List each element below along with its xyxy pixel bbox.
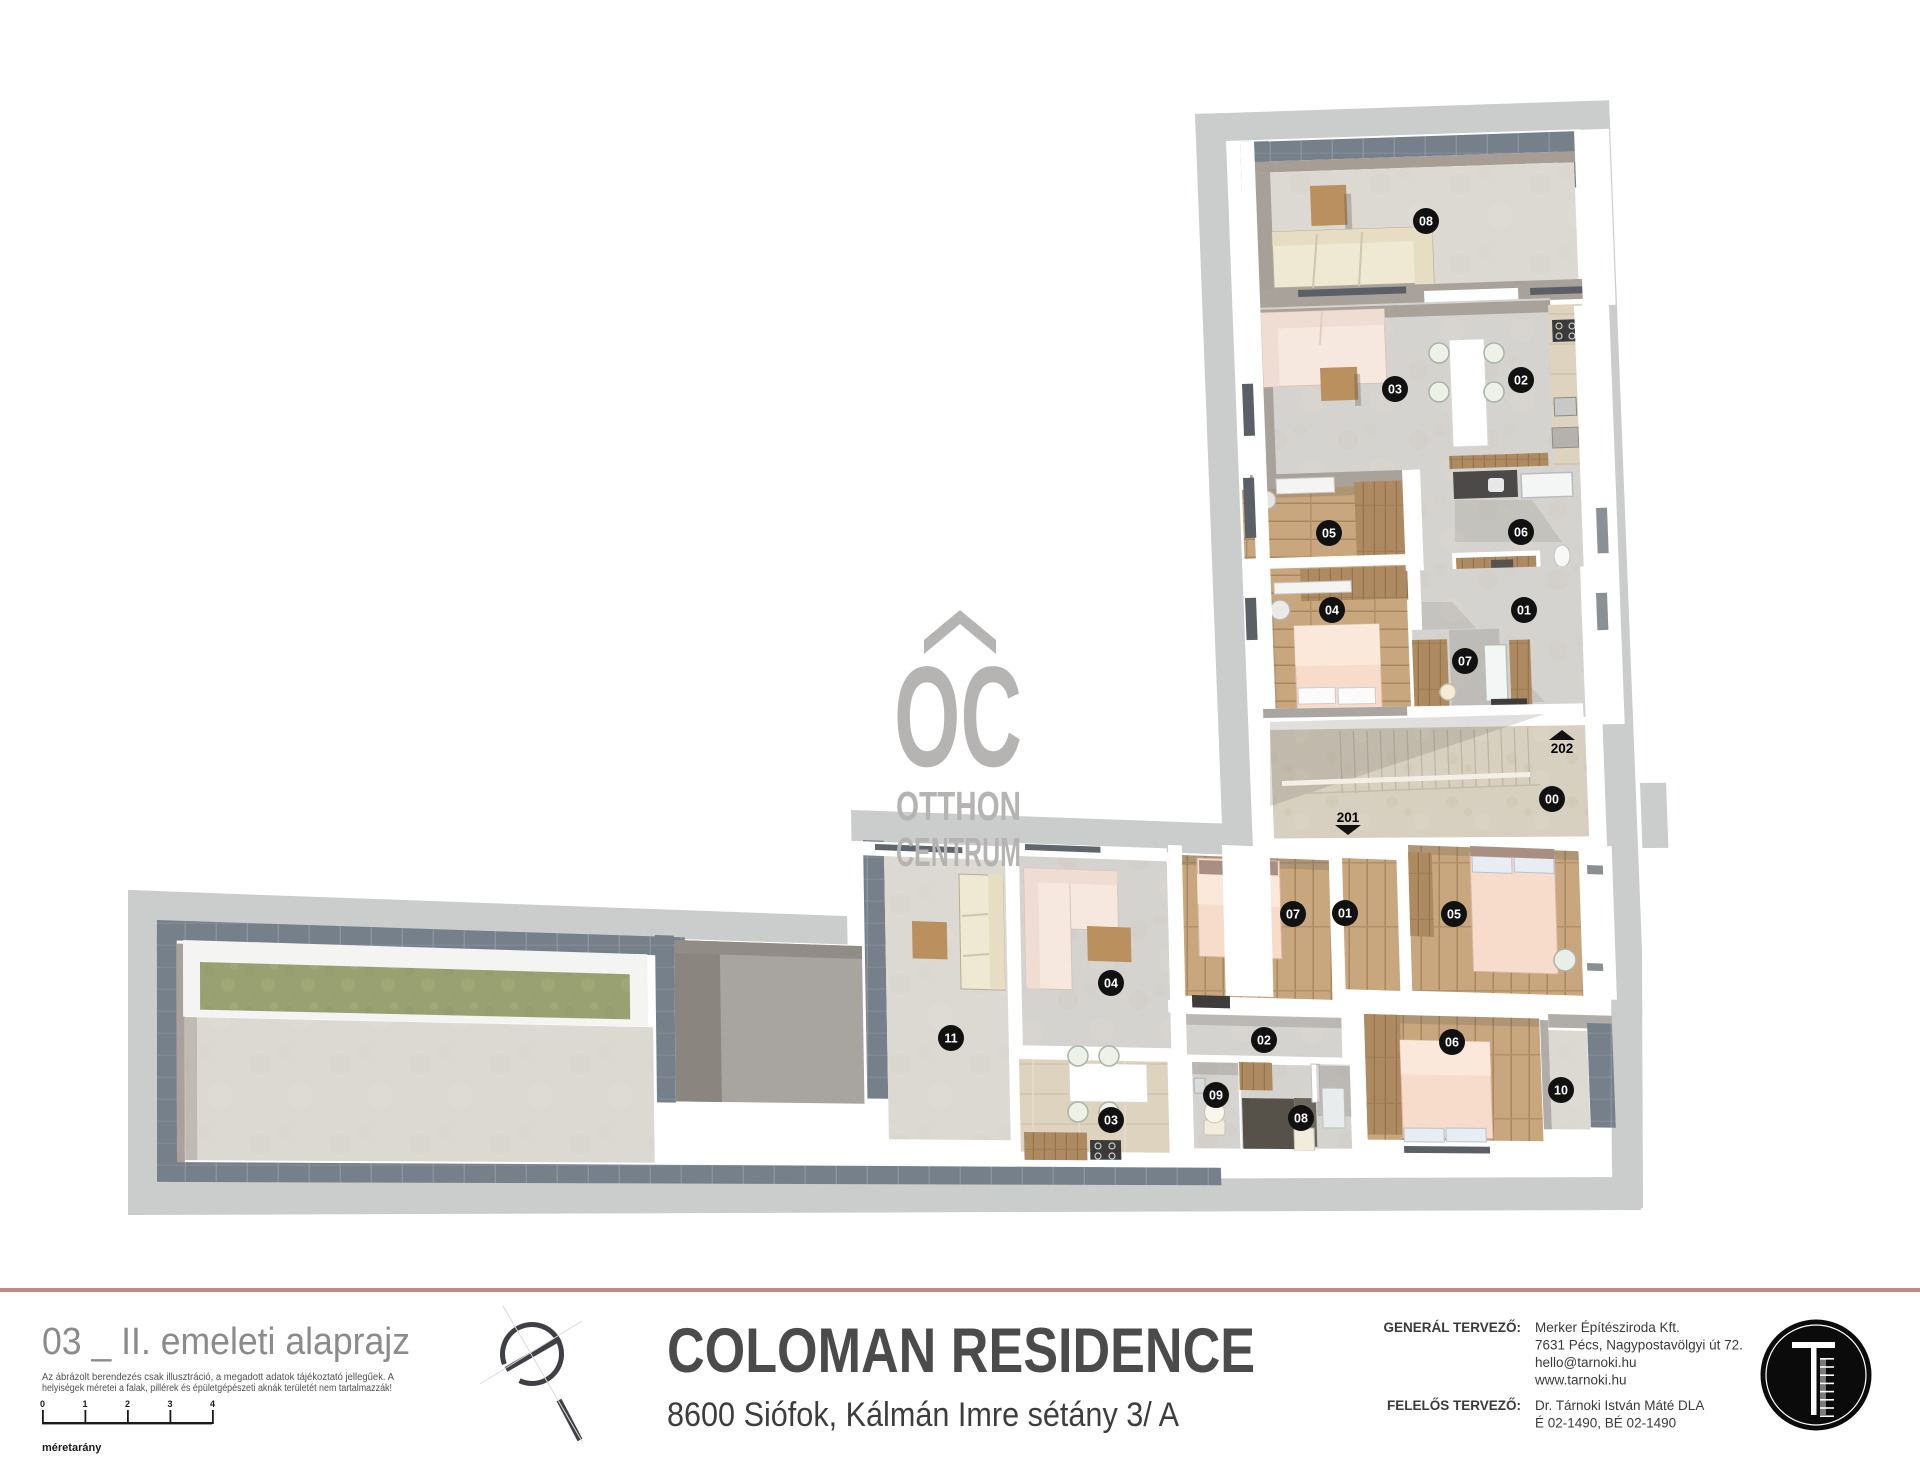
svg-text:COLOMAN RESIDENCE: COLOMAN RESIDENCE (667, 1316, 1255, 1386)
svg-text:4: 4 (210, 1399, 215, 1409)
svg-text:helyiségek méretei a falak, pi: helyiségek méretei a falak, pillérek és … (42, 1383, 392, 1394)
svg-text:www.tarnoki.hu: www.tarnoki.hu (1534, 1373, 1627, 1388)
svg-text:GENERÁL TERVEZŐ:: GENERÁL TERVEZŐ: (1383, 1320, 1521, 1335)
svg-text:7631 Pécs, Nagypostavölgyi út: 7631 Pécs, Nagypostavölgyi út 72. (1535, 1338, 1743, 1353)
svg-text:Merker Építésziroda Kft.: Merker Építésziroda Kft. (1535, 1320, 1680, 1335)
svg-text:1: 1 (83, 1399, 88, 1409)
svg-text:3: 3 (168, 1399, 173, 1409)
svg-text:0: 0 (40, 1399, 45, 1409)
svg-text:2: 2 (125, 1399, 130, 1409)
svg-text:03 _ II. emeleti alaprajz: 03 _ II. emeleti alaprajz (42, 1321, 410, 1363)
svg-text:hello@tarnoki.hu: hello@tarnoki.hu (1535, 1355, 1637, 1370)
svg-text:Dr. Tárnoki István Máté DLA: Dr. Tárnoki István Máté DLA (1535, 1398, 1704, 1413)
svg-text:méretarány: méretarány (42, 1442, 102, 1454)
svg-text:FELELŐS TERVEZŐ:: FELELŐS TERVEZŐ: (1387, 1398, 1521, 1413)
svg-text:Az ábrázolt berendezés csak il: Az ábrázolt berendezés csak illusztráció… (42, 1372, 394, 1383)
svg-text:8600 Siófok, Kálmán Imre sétán: 8600 Siófok, Kálmán Imre sétány 3/ A (667, 1396, 1179, 1434)
svg-text:É 02-1490, BÉ 02-1490: É 02-1490, BÉ 02-1490 (1535, 1416, 1676, 1431)
